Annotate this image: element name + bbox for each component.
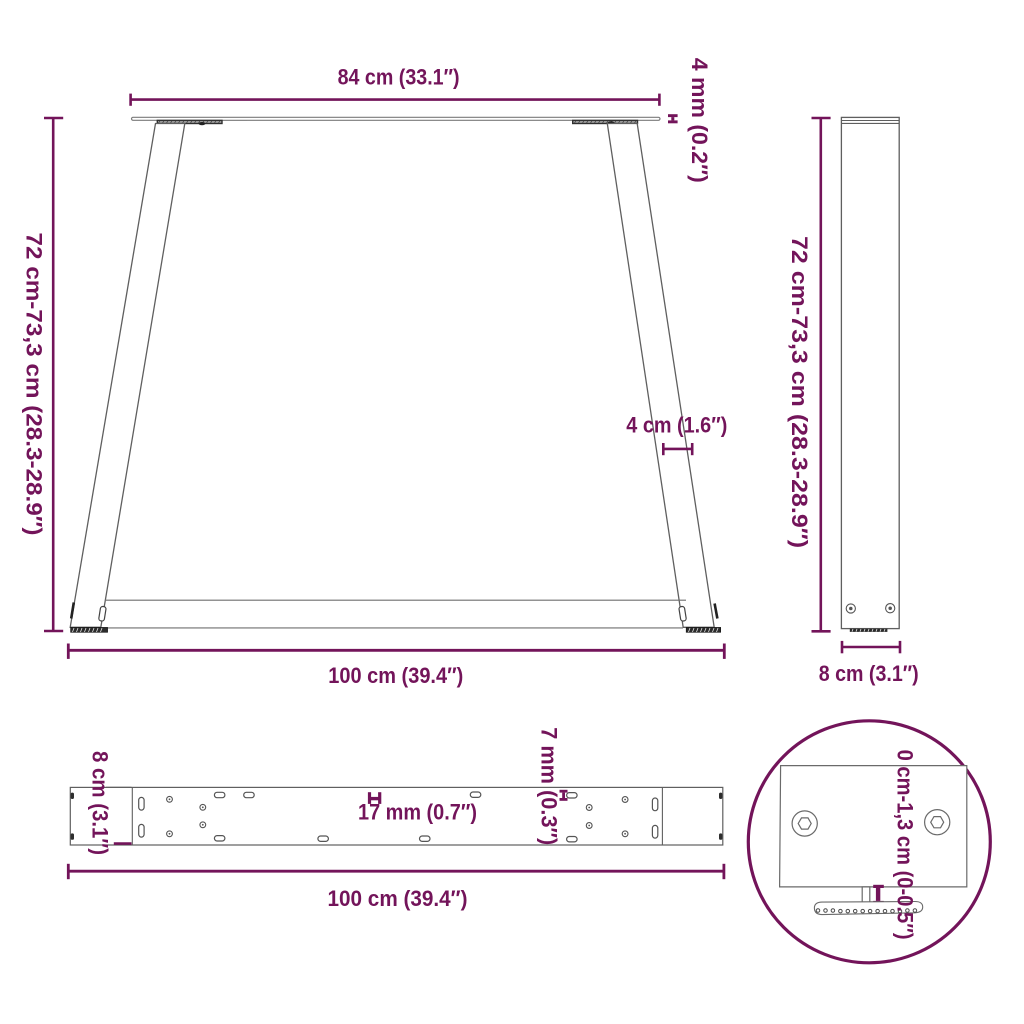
svg-text:100 cm (39.4″): 100 cm (39.4″) — [328, 886, 468, 911]
svg-text:7 mm (0.3″): 7 mm (0.3″) — [537, 727, 562, 845]
svg-text:4 cm (1.6″): 4 cm (1.6″) — [626, 413, 727, 438]
svg-text:0 cm-1,3 cm (0-0.5″): 0 cm-1,3 cm (0-0.5″) — [893, 750, 918, 940]
svg-text:17 mm (0.7″): 17 mm (0.7″) — [358, 800, 477, 825]
svg-text:4 mm (0.2″): 4 mm (0.2″) — [687, 58, 712, 183]
svg-text:84 cm (33.1″): 84 cm (33.1″) — [338, 65, 460, 90]
svg-text:8 cm (3.1″): 8 cm (3.1″) — [88, 751, 113, 855]
svg-text:72 cm-73,3 cm (28.3-28.9″): 72 cm-73,3 cm (28.3-28.9″) — [787, 236, 812, 548]
svg-text:72 cm-73,3 cm (28.3-28.9″): 72 cm-73,3 cm (28.3-28.9″) — [22, 233, 47, 536]
svg-text:8 cm (3.1″): 8 cm (3.1″) — [819, 661, 919, 686]
svg-text:100 cm (39.4″): 100 cm (39.4″) — [328, 663, 463, 688]
